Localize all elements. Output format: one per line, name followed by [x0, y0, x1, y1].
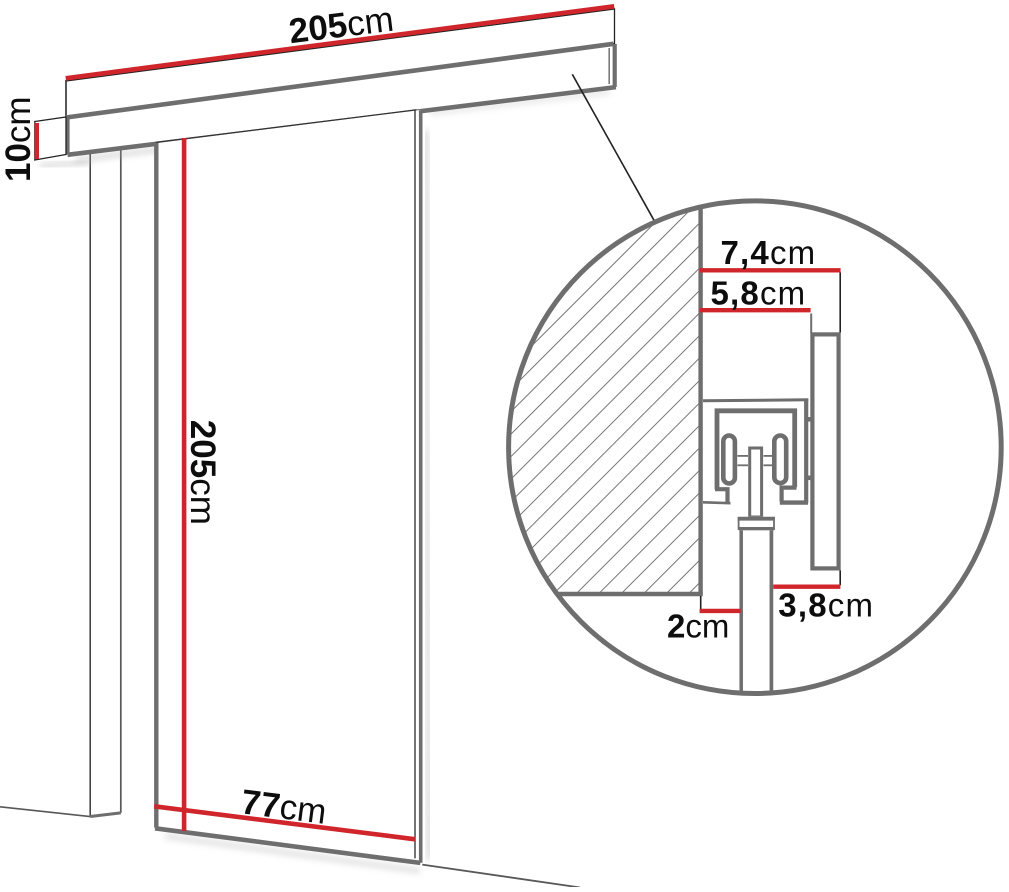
svg-text:3,8cm: 3,8cm	[778, 586, 874, 623]
svg-text:10cm: 10cm	[0, 96, 38, 182]
svg-text:5,8cm: 5,8cm	[711, 275, 807, 312]
svg-text:7,4cm: 7,4cm	[721, 234, 817, 271]
svg-text:205cm: 205cm	[183, 420, 222, 525]
svg-text:2cm: 2cm	[667, 608, 729, 645]
